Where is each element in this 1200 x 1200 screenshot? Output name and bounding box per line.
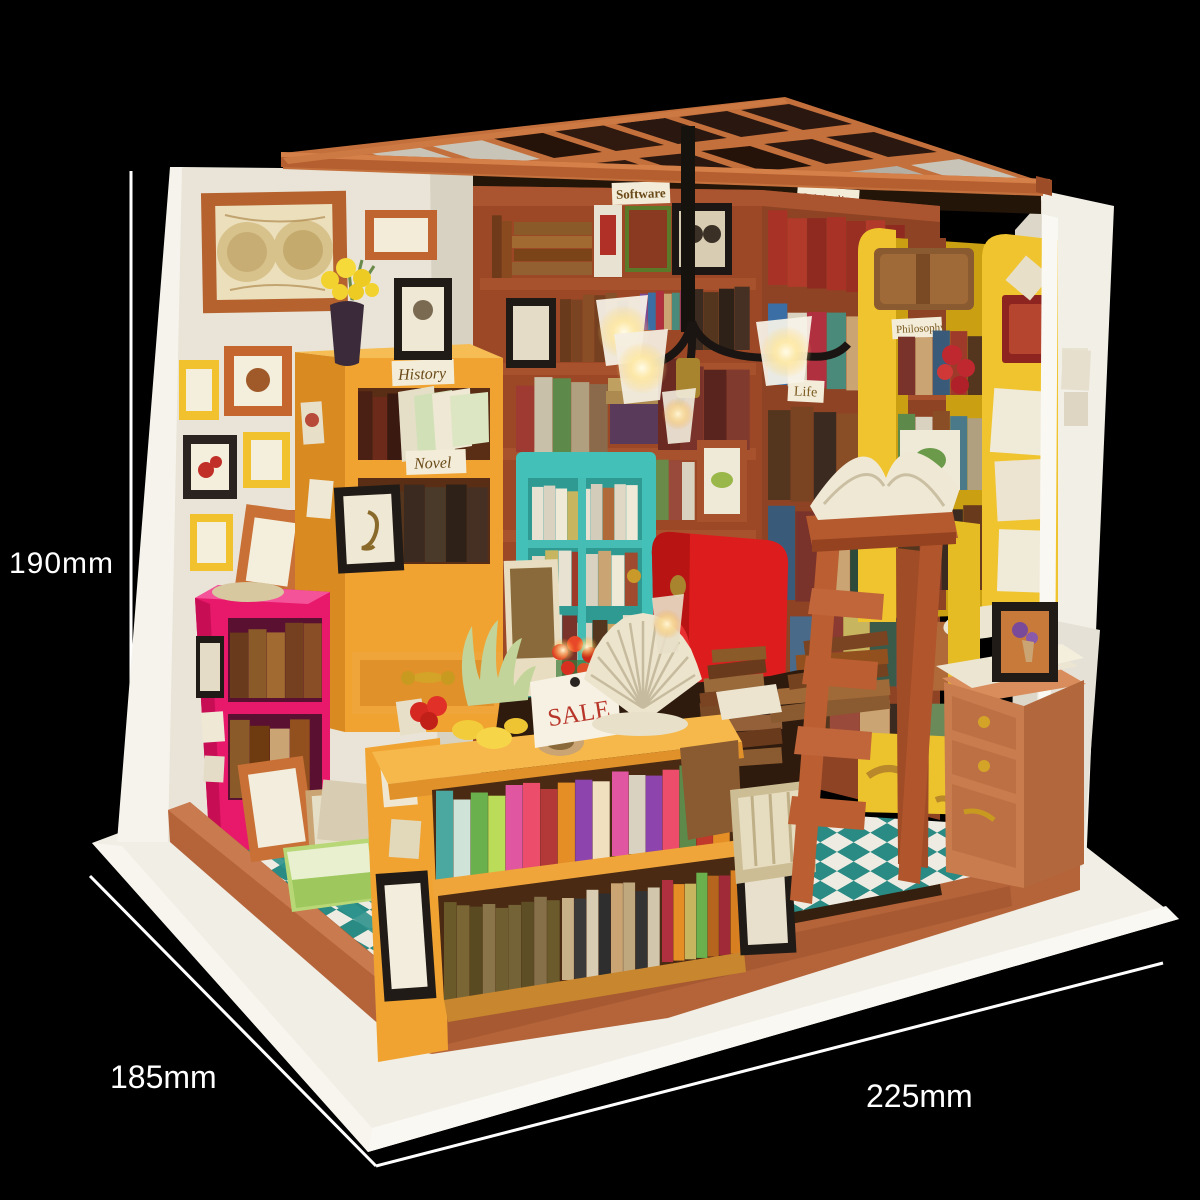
svg-text:Novel: Novel	[413, 454, 452, 472]
svg-text:History: History	[397, 365, 447, 384]
svg-text:225mm: 225mm	[866, 1078, 973, 1114]
svg-text:Life: Life	[794, 384, 818, 400]
svg-text:Software: Software	[616, 185, 666, 202]
svg-text:185mm: 185mm	[110, 1059, 217, 1095]
svg-text:190mm: 190mm	[9, 547, 114, 580]
